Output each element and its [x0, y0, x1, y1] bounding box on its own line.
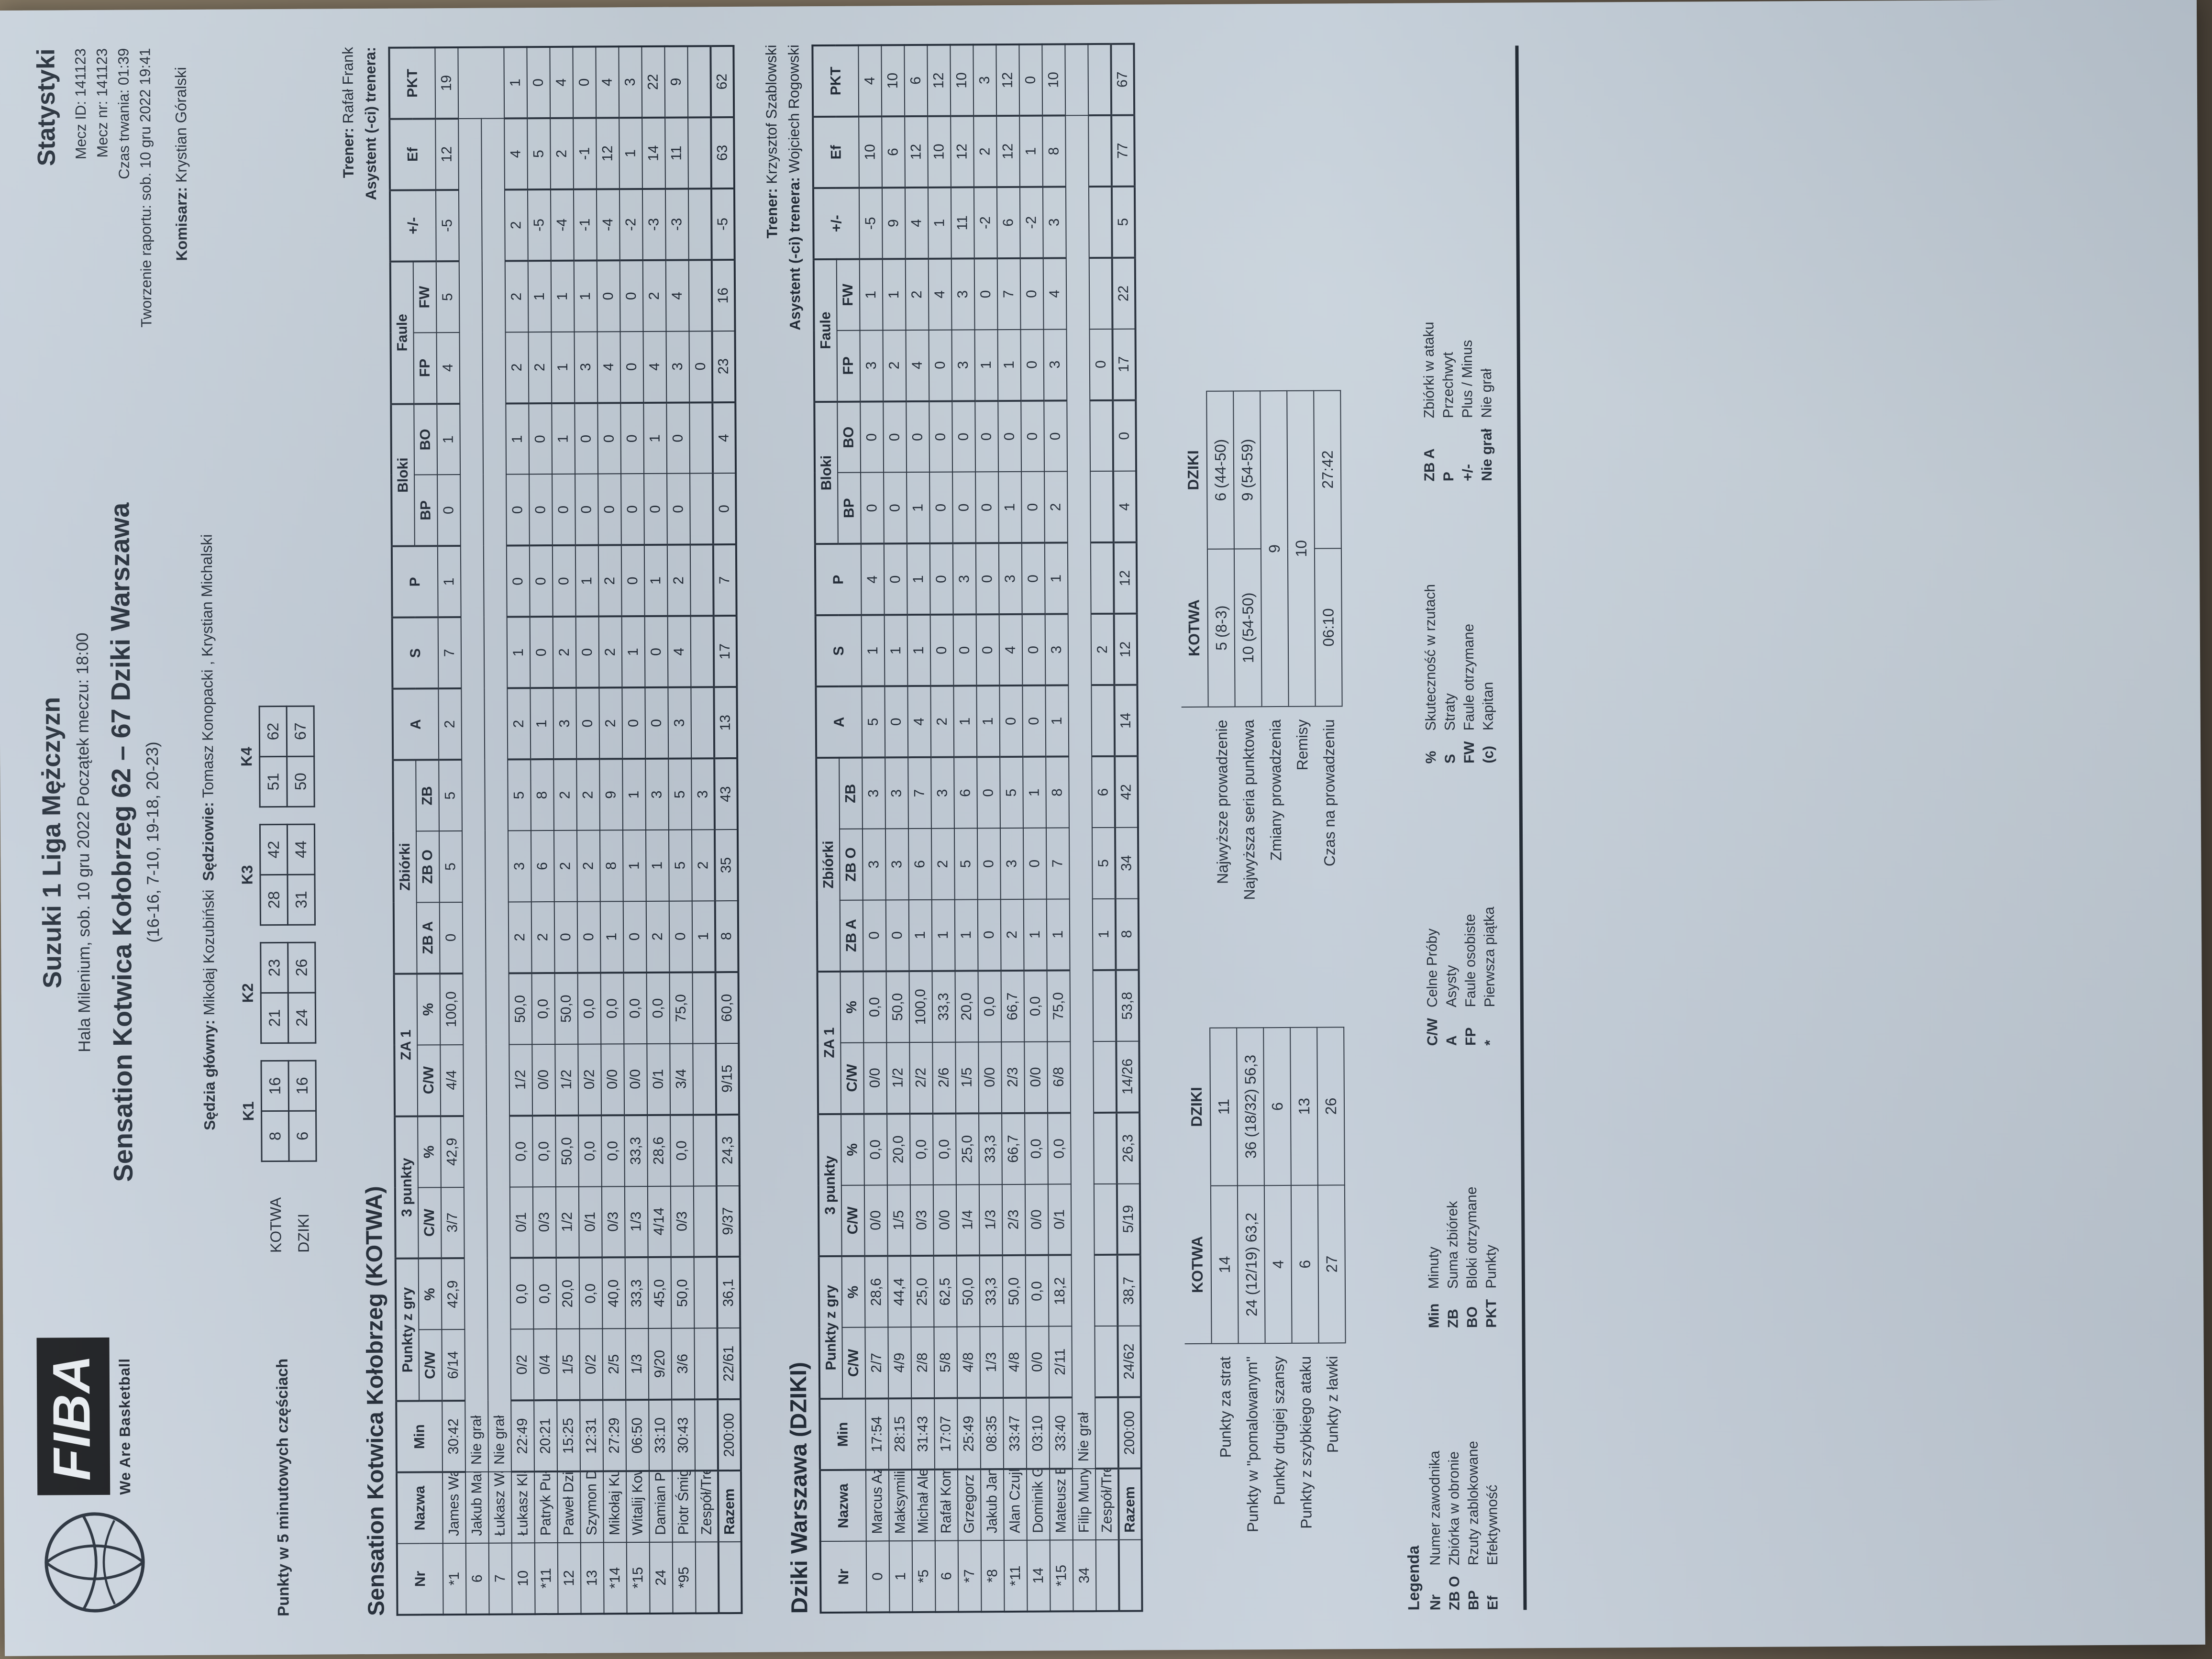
legend-key: BP	[1466, 1576, 1482, 1610]
column-subheader: BP	[414, 475, 438, 546]
stat-cell: 1/3	[625, 1328, 649, 1400]
summary-kotwa-value: 24 (12/19) 63,2	[1238, 1185, 1265, 1343]
column-header: 3 punkty	[395, 1116, 419, 1259]
stat-cell: 7	[438, 617, 462, 688]
stat-cell: 3	[952, 330, 975, 401]
stat-cell: 8	[600, 830, 623, 901]
player-number: 12	[558, 1543, 581, 1614]
stat-cell: 42,9	[442, 1258, 465, 1329]
stat-cell: 20,0	[887, 1114, 910, 1185]
player-name: Jakub Marchlewski	[465, 1472, 489, 1543]
stat-cell: 2	[667, 545, 691, 616]
stat-cell: 1	[883, 259, 906, 330]
stat-cell: 0	[1023, 828, 1047, 899]
stat-cell: 0	[576, 688, 599, 759]
quarter-header: K4	[238, 706, 259, 807]
stat-cell: 1	[622, 759, 646, 830]
bottom-rule	[1515, 45, 1526, 1610]
stat-cell: 2	[930, 686, 954, 757]
stat-cell: 17	[714, 616, 737, 687]
stat-cell: 0	[978, 899, 1001, 971]
quarter-score-cell: 28	[260, 874, 288, 925]
stat-cell: 5	[508, 759, 531, 830]
stat-cell: 2/2	[909, 1042, 933, 1114]
legend-key: FW	[1461, 741, 1478, 763]
summary-row: Remisy10	[1287, 391, 1316, 974]
stat-cell: 3/4	[670, 1043, 693, 1115]
stat-cell: 25,0	[956, 1113, 979, 1184]
stat-cell: 0	[689, 331, 713, 402]
stat-cell: 17:54	[865, 1399, 889, 1470]
quarter-score-cell: 44	[287, 824, 315, 874]
stat-cell	[1093, 970, 1117, 1041]
player-number	[696, 1542, 719, 1613]
stat-cell: 0	[1019, 44, 1042, 116]
stat-cell: 45,0	[648, 1257, 672, 1328]
legend-key: PKT	[1483, 1299, 1500, 1328]
stat-cell: 0	[1020, 258, 1044, 329]
stat-cell: 3	[619, 46, 642, 118]
stat-cell	[694, 1257, 718, 1328]
stat-cell: 2/11	[1049, 1327, 1072, 1398]
stat-cell: 0	[1022, 543, 1045, 614]
stat-cell: 0/1	[1048, 1184, 1072, 1255]
stat-cell: 1	[953, 686, 977, 757]
stat-cell: 4	[437, 332, 460, 404]
stat-cell: 14	[642, 118, 665, 189]
kotwa-coach-name: Rafał Frank	[339, 47, 356, 123]
stat-cell: 2	[554, 830, 577, 902]
column-header: P	[392, 546, 438, 618]
title-block: Suzuki 1 Liga Mężczyzn Hala Milenium, so…	[32, 354, 166, 1330]
player-name: Mikołaj Kurpisz	[603, 1471, 627, 1542]
stat-cell: 2	[599, 617, 622, 688]
stat-cell: 10	[950, 44, 973, 116]
stat-cell: 0	[976, 543, 999, 614]
summary-kotwa-value: 4	[1264, 1185, 1292, 1343]
legend-key: (c)	[1481, 741, 1497, 763]
stat-cell: 14/26	[1116, 1041, 1139, 1112]
stat-cell: 22:49	[511, 1400, 534, 1471]
player-name: James Washington	[442, 1472, 466, 1543]
stat-cell: 1	[1093, 899, 1116, 970]
stat-cell	[690, 545, 714, 616]
player-number	[719, 1542, 742, 1613]
stat-cell: 23	[712, 331, 736, 402]
stat-cell: 2	[692, 829, 715, 901]
stat-cell: 0	[666, 402, 690, 474]
stat-cell: 0,0	[1026, 1255, 1049, 1327]
stat-cell: 2	[646, 901, 670, 973]
commissioner-label: Komisarz:	[173, 187, 190, 261]
summary-row-label: Punkty z szybkiego ataku	[1292, 1343, 1320, 1611]
stat-cell: 36,1	[717, 1257, 741, 1328]
stat-cell: 12	[435, 119, 459, 190]
stat-cell: 3	[931, 757, 954, 829]
stat-cell: 0	[1044, 400, 1067, 472]
summary-leads-table: KOTWADZIKINajwyższe prowadzenie5 (8-3)6 …	[1180, 390, 1344, 975]
stat-cell: 5	[669, 829, 692, 901]
stat-cell: 0,0	[647, 973, 670, 1044]
stat-cell: 2/3	[1001, 1042, 1025, 1113]
stat-cell: 0	[952, 472, 976, 543]
stat-cell: 35	[715, 829, 738, 901]
column-subheader: FP	[837, 330, 861, 401]
quarter-score-row: 2426	[288, 942, 316, 1043]
stat-cell: 5	[862, 686, 885, 758]
team-row-label: Zespół/Trener	[695, 1471, 719, 1542]
legend-meaning: Pierwsza piątka	[1481, 797, 1498, 1007]
player-name: Damian Pieloch	[649, 1471, 673, 1542]
quarter-scores-teams: KOTWADZIKI	[262, 1176, 318, 1253]
stat-cell: 1/5	[556, 1329, 580, 1400]
stat-cell: 5	[668, 759, 692, 830]
stat-cell: 28,6	[647, 1115, 671, 1186]
stat-cell: 24,3	[716, 1115, 740, 1186]
stat-cell: 3	[1000, 828, 1024, 899]
legend-meaning: Minuty	[1425, 1079, 1442, 1289]
stat-cell: 0/0	[1024, 1041, 1048, 1113]
roster-header: NrNazwaMinPunkty z gry3 punktyZA 1Zbiórk…	[389, 47, 443, 1615]
stat-cell: 1/2	[886, 1042, 910, 1114]
stat-cell: 1	[862, 615, 885, 686]
stat-cell: 08:35	[980, 1398, 1004, 1469]
stat-cell	[1091, 542, 1114, 614]
player-number: 0	[866, 1541, 890, 1612]
player-name: Paweł Dzierżak	[557, 1471, 581, 1543]
stat-cell: 0	[529, 403, 552, 475]
summary-row: Punkty z ławki2726	[1317, 1027, 1347, 1611]
stat-cell: 1	[1019, 116, 1043, 187]
stat-cell: 3	[863, 829, 886, 900]
legend-meaning: Zbiórki w ataku	[1420, 232, 1438, 418]
player-number: *8	[981, 1540, 1005, 1612]
stat-cell: 1	[574, 260, 597, 332]
stat-cell: 0/0	[1026, 1327, 1049, 1398]
summary-kotwa-value: 10 (54-50)	[1234, 549, 1262, 707]
summary-dziki-value: 6	[1263, 1028, 1291, 1185]
stat-cell: 12	[1114, 542, 1137, 614]
stat-cell: 17	[1113, 329, 1136, 400]
stat-cell: 3	[885, 829, 909, 900]
kotwa-assistant-label: Asystent (-ci) trenera:	[362, 47, 379, 200]
summary-row: Punkty z szybkiego ataku613	[1290, 1028, 1320, 1611]
legend-key: ZB	[1445, 1299, 1461, 1328]
stat-cell: 0	[621, 545, 645, 616]
stat-cell: 4	[666, 260, 689, 331]
stat-cell: 6/8	[1047, 1041, 1071, 1113]
stat-cell: 0/0	[532, 1044, 555, 1116]
legend-meaning: Punkty	[1482, 1079, 1500, 1289]
summary-team-header: KOTWA	[1181, 549, 1208, 707]
stat-cell: 17:07	[934, 1398, 958, 1470]
stat-cell: 10	[928, 116, 951, 188]
stat-cell: 0/0	[978, 1042, 1002, 1113]
stat-cell: -5	[859, 188, 883, 259]
match-score-line: Sensation Kotwica Kołobrzeg 62 – 67 Dzik…	[103, 354, 140, 1330]
player-number: *14	[604, 1542, 627, 1614]
stat-cell: 3	[645, 759, 669, 830]
stat-cell: 50,0	[555, 973, 578, 1044]
stat-cell: 0	[553, 545, 576, 617]
player-name: Patryk Pułkotycki	[534, 1471, 558, 1543]
stat-cell: 50,0	[555, 1115, 579, 1186]
player-name: Szymon Długosz	[580, 1471, 604, 1543]
stat-cell: 0	[507, 546, 530, 617]
column-header: Nazwa	[820, 1470, 866, 1541]
column-header: +/-	[390, 190, 436, 261]
stat-cell: 4	[1043, 258, 1067, 329]
stat-cell: 06:50	[626, 1400, 649, 1471]
stat-cell: 1/5	[887, 1185, 911, 1256]
player-name: Dominik Groth	[1027, 1469, 1050, 1540]
stat-cell: 33,3	[980, 1256, 1003, 1327]
officials-block: Komisarz: Krystian Góralski Sędzia główn…	[172, 48, 221, 1617]
column-header: Faule	[390, 261, 414, 404]
stat-cell: -2	[974, 187, 997, 258]
stat-cell: 0	[622, 687, 645, 759]
summary-row-label: Remisy	[1289, 707, 1317, 974]
stat-cell: 0	[977, 757, 1000, 828]
stat-cell: 1	[438, 546, 461, 617]
summary-team-header: DZIKI	[1180, 391, 1207, 549]
column-header: Bloki	[391, 404, 415, 546]
stat-cell: 0/2	[510, 1329, 534, 1401]
stat-cell	[687, 46, 711, 117]
stat-cell: 3	[508, 830, 531, 902]
stat-cell: 0	[886, 900, 909, 971]
stat-cell: 25:49	[957, 1398, 981, 1470]
stat-cell: 3	[668, 687, 691, 759]
stat-cell: 0	[930, 543, 953, 615]
player-number	[1096, 1540, 1119, 1611]
stat-cell: 0/3	[671, 1186, 694, 1257]
stat-cell	[1094, 1183, 1117, 1255]
summary-header-spacer	[1182, 707, 1210, 975]
stat-cell: 0,0	[1048, 1113, 1071, 1184]
stat-cell: 0,0	[910, 1113, 933, 1184]
duration: Czas trwania: 01:39	[113, 48, 136, 354]
quarter-box: K1816616	[239, 1060, 317, 1162]
stat-cell: 6	[904, 45, 928, 116]
stat-cell: 0,0	[532, 973, 555, 1044]
stat-cell: 0	[1090, 329, 1113, 400]
player-name: Filip Munyama	[1073, 1469, 1096, 1540]
kotwa-box-score-table: NrNazwaMinPunkty z gry3 punktyZA 1Zbiórk…	[388, 45, 742, 1616]
stat-cell: 2/7	[865, 1327, 888, 1399]
stat-cell: 2	[643, 260, 666, 332]
column-header: +/-	[813, 188, 860, 259]
stat-cell: 20,0	[556, 1258, 580, 1329]
stat-cell: 0	[999, 686, 1023, 757]
dziki-section-header: Dziki Warszawa (DZIKI) Trener: Krzysztof…	[760, 44, 813, 1614]
quarter-score-table: 816616	[260, 1060, 317, 1162]
summary-dziki-value: 36 (18/32) 56,3	[1237, 1028, 1264, 1185]
stat-cell: 60,0	[716, 972, 739, 1043]
page-header: FIBA We Are Basketball Suzuki 1 Liga Męż…	[30, 48, 166, 1617]
stat-cell	[694, 1328, 718, 1400]
player-number: 10	[512, 1543, 535, 1614]
column-subheader: BO	[837, 401, 861, 473]
column-subheader: C/W	[842, 1327, 865, 1399]
stat-cell: 1	[1023, 757, 1046, 828]
stat-cell: 2	[506, 332, 529, 403]
summary-row-label: Czas na prowadzeniu	[1316, 706, 1344, 974]
stat-cell: 50,0	[509, 973, 532, 1044]
stat-cell: 66,7	[1001, 971, 1025, 1042]
column-header: P	[815, 544, 862, 615]
stat-cell	[1088, 115, 1112, 187]
player-number: *11	[535, 1543, 558, 1614]
stat-cell: 4	[861, 544, 885, 615]
legend-meaning: Faule otrzymane	[1460, 515, 1478, 731]
stat-cell: 0,0	[601, 973, 624, 1044]
summary-kotwa-value: 5 (8-3)	[1207, 549, 1235, 707]
stat-cell: 1	[528, 261, 552, 332]
stat-cell: 0	[440, 902, 463, 973]
stat-cell: 18,2	[1049, 1255, 1072, 1327]
stat-cell: 2	[883, 330, 907, 401]
column-header: S	[816, 615, 862, 686]
stat-cell: 1	[1024, 899, 1047, 971]
stat-cell	[689, 260, 712, 331]
stat-cell: 4/8	[957, 1327, 980, 1398]
quarter-score-row: 5067	[287, 706, 314, 807]
stat-cell: 13	[714, 687, 737, 758]
summary-row: Zmiany prowadzenia9	[1260, 391, 1290, 974]
stat-cell: 0	[506, 475, 530, 546]
stat-cell: 19	[435, 47, 458, 119]
stat-cell	[689, 402, 713, 474]
column-subheader: C/W	[419, 1330, 442, 1401]
stat-cell: 0,0	[624, 973, 647, 1044]
stat-cell: 2/6	[932, 1042, 956, 1113]
summary-row-label: Punkty w "pomalowanym"	[1239, 1343, 1267, 1611]
stat-cell: 2	[906, 259, 929, 330]
stat-cell: 0/3	[602, 1186, 625, 1258]
stat-cell: 0	[554, 902, 578, 973]
commissioner-name: Krystian Góralski	[172, 67, 190, 183]
stat-cell: 53,8	[1116, 970, 1139, 1041]
stat-cell: -3	[642, 189, 666, 260]
stat-cell: 20:21	[534, 1400, 557, 1471]
referees-label: Sędziowie:	[199, 802, 217, 881]
stat-cell: 0	[930, 615, 954, 686]
stat-cell: 0	[998, 400, 1021, 472]
player-name: Jakub Janik	[981, 1469, 1004, 1540]
stat-cell: 0	[929, 472, 953, 543]
stat-cell: 20,0	[955, 971, 979, 1042]
legend-meaning: Efektywność	[1484, 1361, 1501, 1566]
stat-cell: 1	[646, 830, 669, 901]
stat-cell: 0	[575, 474, 598, 545]
legend-column: ZB AZbiórki w atakuPPrzechwyt+/-Plus / M…	[1420, 232, 1495, 482]
stat-cell: 4	[550, 47, 573, 118]
stat-cell: 2	[553, 617, 576, 688]
stat-cell: 1	[600, 901, 624, 973]
player-number: *1	[443, 1543, 466, 1615]
quarter-team-label: DZIKI	[289, 1176, 318, 1253]
dziki-coach-block: Trener: Krzysztof Szablowski Asystent (-…	[760, 44, 806, 331]
player-name: Łukasz Klawa	[511, 1471, 535, 1543]
stat-cell: 77	[1111, 115, 1135, 187]
summary-row-label: Zmiany prowadzenia	[1262, 707, 1290, 974]
stat-cell: 1	[437, 404, 460, 475]
player-number: 6	[466, 1543, 489, 1615]
quarter-header: K2	[239, 942, 260, 1044]
stat-cell: 50,0	[1003, 1255, 1026, 1327]
stat-cell: 2	[529, 332, 552, 403]
kotwa-coach-block: Trener: Rafał Frank Asystent (-ci) trene…	[337, 47, 382, 200]
legend-key: S	[1442, 741, 1459, 763]
stat-cell: 0	[597, 403, 621, 474]
dziki-assistant-name: Wojciech Rogowski	[785, 44, 802, 173]
stat-cell: 4	[929, 258, 952, 330]
quarter-score-table: 28423144	[259, 824, 316, 926]
column-header: PKT	[389, 47, 435, 119]
stat-cell: 2	[1091, 614, 1115, 685]
legend-section: Legenda NrNumer zawodnikaZB OZbiórka w o…	[1396, 41, 1526, 1610]
stat-cell: 1	[907, 543, 930, 615]
stat-cell: 0	[977, 828, 1001, 899]
stat-cell: 62,5	[934, 1256, 957, 1327]
stat-cell: 0	[952, 401, 975, 472]
summary-header-spacer	[1185, 1344, 1213, 1612]
summary-dziki-value: 26	[1317, 1027, 1345, 1185]
stat-cell: 9/37	[717, 1186, 740, 1257]
match-id: Mecz ID: 141123	[70, 48, 93, 354]
stat-cell: 0	[953, 615, 977, 686]
player-name: Marcus Azor	[866, 1470, 889, 1541]
stat-cell	[690, 474, 713, 545]
stat-cell: 0	[437, 475, 461, 546]
stat-cell: 0	[883, 401, 907, 473]
stat-cell: 0,0	[532, 1116, 556, 1187]
team-row-label: Zespół/Trener	[1095, 1469, 1119, 1540]
stat-cell: 3	[575, 332, 598, 403]
quarter-header: K1	[239, 1060, 261, 1162]
stat-cell: 4	[596, 46, 619, 118]
legend-meaning: Suma zbiórek	[1444, 1079, 1461, 1289]
stat-cell: 1/2	[555, 1044, 578, 1115]
summary-dziki-value: 27:42	[1314, 390, 1341, 548]
stat-cell: 3	[691, 758, 715, 829]
stat-cell	[693, 1115, 717, 1186]
summary-row-label: Najwyższe prowadzenie	[1208, 707, 1237, 975]
stat-cell: 0	[906, 401, 929, 472]
stat-cell: 1	[1047, 899, 1070, 970]
stat-cell: 1	[643, 402, 667, 474]
stat-cell: 14	[1114, 685, 1138, 756]
stat-cell: 0	[620, 403, 644, 474]
stat-cell: 0	[1022, 686, 1046, 757]
summary-team-header: DZIKI	[1183, 1028, 1211, 1186]
quarter-breakdown-line: (16-16, 7-10, 19-18, 20-23)	[141, 354, 166, 1330]
stat-cell: 3	[973, 44, 996, 116]
legend-key: A	[1444, 1018, 1460, 1046]
stat-cell	[688, 117, 711, 188]
stat-cell: 0	[621, 474, 644, 545]
stat-cell: 8	[1116, 899, 1139, 970]
stat-cell: 9/20	[648, 1328, 672, 1400]
stat-cell: 0/1	[647, 1043, 670, 1115]
stat-cell: 1	[998, 472, 1022, 543]
stat-cell: 4	[504, 118, 528, 189]
stat-cell: 0/0	[864, 1185, 888, 1256]
stat-cell: 9/15	[716, 1043, 739, 1115]
column-subheader: ZB A	[840, 900, 863, 972]
report-created: Tworzenie raportu: sob. 10 gru 2022 19:4…	[134, 48, 157, 354]
